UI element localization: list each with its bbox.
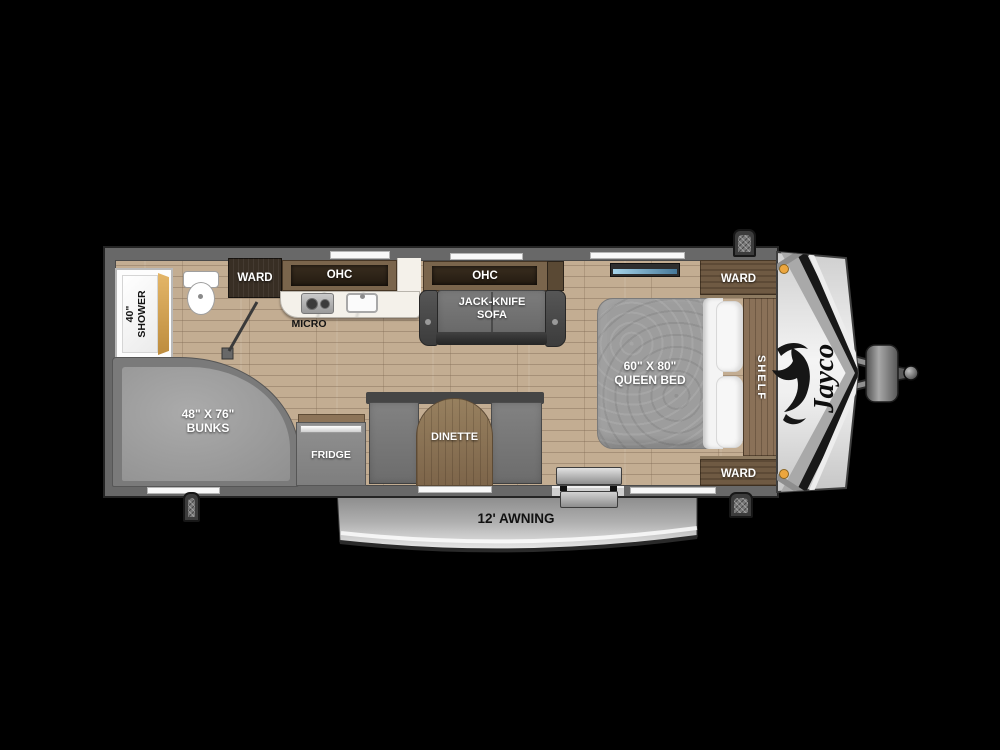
- marker-light: [780, 470, 789, 479]
- jayco-logo-text: Jayco: [808, 344, 840, 414]
- utility-vent-icon: [729, 492, 753, 518]
- water-heater-vent-icon: [183, 492, 200, 522]
- propane-tank-cover: [866, 345, 898, 402]
- entry-step-lower: [560, 491, 618, 508]
- marker-light: [780, 265, 789, 274]
- floorplan-canvas: 12' AWNING 40" SHOWER WARD OHC MICRO: [0, 0, 1000, 750]
- roof-vent-icon: [733, 229, 756, 257]
- entry-step-upper: [556, 467, 622, 485]
- front-cap-graphic: Jayco: [0, 0, 1000, 750]
- hitch-ball: [904, 366, 918, 380]
